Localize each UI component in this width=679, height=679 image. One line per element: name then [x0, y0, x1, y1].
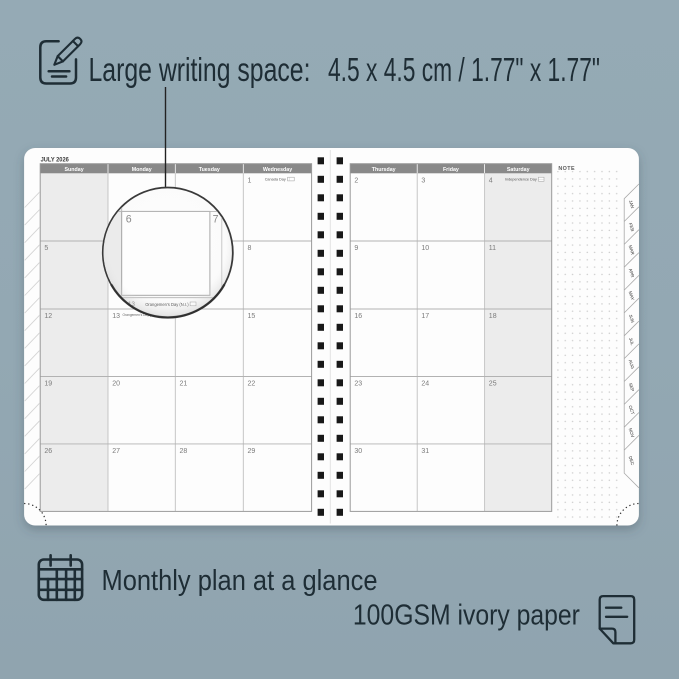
svg-text:NOTE: NOTE [558, 166, 575, 172]
svg-text:12: 12 [44, 313, 52, 320]
svg-text:Monday: Monday [132, 167, 152, 173]
svg-text:23: 23 [354, 381, 362, 388]
svg-text:Tuesday: Tuesday [199, 167, 220, 173]
svg-text:22: 22 [248, 381, 256, 388]
svg-text:5: 5 [44, 245, 48, 252]
svg-text:4: 4 [489, 177, 493, 184]
svg-text:28: 28 [180, 448, 188, 455]
svg-text:21: 21 [180, 381, 188, 388]
svg-text:24: 24 [421, 381, 429, 388]
svg-text:10: 10 [421, 245, 429, 252]
svg-text:Large writing space:4.5 x 4.5: Large writing space:4.5 x 4.5 cm / 1.77"… [89, 52, 601, 89]
svg-text:25: 25 [489, 381, 497, 388]
svg-text:2: 2 [354, 177, 358, 184]
svg-text:19: 19 [44, 381, 52, 388]
svg-text:29: 29 [248, 448, 256, 455]
svg-text:30: 30 [354, 448, 362, 455]
svg-text:18: 18 [489, 313, 497, 320]
svg-text:Independence Day: Independence Day [505, 178, 537, 182]
svg-text:11: 11 [489, 245, 496, 252]
svg-text:Thursday: Thursday [372, 167, 396, 173]
svg-text:31: 31 [421, 448, 429, 455]
svg-text:9: 9 [354, 245, 358, 252]
svg-text:20: 20 [112, 381, 120, 388]
svg-text:Canada Day: Canada Day [265, 178, 286, 182]
svg-text:JULY 2026: JULY 2026 [41, 157, 69, 164]
svg-text:8: 8 [248, 245, 252, 252]
svg-text:17: 17 [421, 313, 429, 320]
svg-text:Saturday: Saturday [507, 167, 530, 173]
svg-text:Wednesday: Wednesday [263, 167, 292, 173]
svg-text:Sunday: Sunday [65, 167, 84, 173]
svg-text:27: 27 [112, 448, 120, 455]
svg-text:13: 13 [112, 313, 120, 320]
svg-text:16: 16 [354, 313, 362, 320]
svg-text:Monthly plan at a glance: Monthly plan at a glance [102, 565, 378, 597]
svg-text:3: 3 [421, 177, 425, 184]
svg-text:26: 26 [44, 448, 52, 455]
svg-text:15: 15 [248, 313, 256, 320]
svg-text:100GSM ivory paper: 100GSM ivory paper [353, 600, 580, 632]
svg-text:1: 1 [248, 177, 252, 184]
svg-text:Friday: Friday [443, 167, 459, 173]
